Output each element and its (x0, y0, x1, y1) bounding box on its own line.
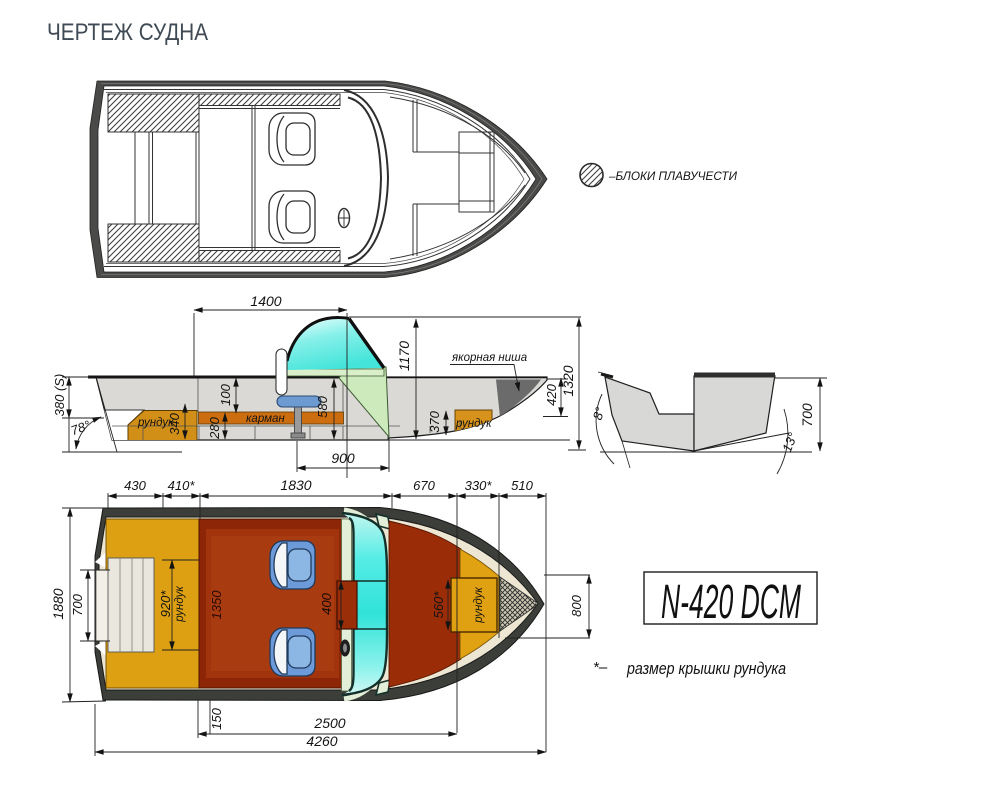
svg-text:370: 370 (427, 410, 442, 432)
svg-text:1350: 1350 (209, 590, 224, 620)
svg-text:410*: 410* (168, 478, 196, 493)
svg-text:карман: карман (246, 413, 285, 425)
svg-text:700: 700 (70, 593, 85, 615)
svg-text:100: 100 (218, 383, 233, 405)
svg-text:900: 900 (331, 450, 355, 466)
svg-text:2500: 2500 (313, 715, 345, 731)
svg-text:размер крышки рундука: размер крышки рундука (626, 660, 786, 678)
svg-text:1830: 1830 (280, 477, 311, 493)
svg-text:ЧЕРТЕЖ СУДНА: ЧЕРТЕЖ СУДНА (47, 19, 208, 46)
svg-text:N-420 DCM: N-420 DCM (661, 576, 801, 629)
svg-text:280: 280 (207, 416, 222, 439)
svg-text:8°: 8° (590, 405, 608, 421)
svg-text:580: 580 (315, 395, 330, 417)
svg-text:рундук: рундук (455, 418, 492, 430)
svg-text:1400: 1400 (250, 293, 281, 309)
svg-text:–БЛОКИ ПЛАВУЧЕСТИ: –БЛОКИ ПЛАВУЧЕСТИ (608, 171, 738, 183)
svg-text:430: 430 (124, 478, 146, 493)
svg-text:420: 420 (544, 383, 559, 405)
svg-text:560*: 560* (431, 591, 446, 619)
svg-text:78°: 78° (69, 417, 93, 438)
svg-text:*–: *– (593, 659, 608, 676)
svg-text:якорная ниша: якорная ниша (451, 352, 527, 364)
svg-text:1170: 1170 (396, 341, 412, 371)
svg-text:1320: 1320 (560, 365, 576, 396)
svg-text:700: 700 (799, 403, 815, 427)
svg-text:рундук: рундук (174, 586, 186, 623)
svg-text:380 (S): 380 (S) (52, 374, 67, 417)
svg-text:510: 510 (511, 478, 533, 493)
svg-text:400: 400 (319, 592, 334, 614)
svg-text:4260: 4260 (306, 733, 337, 749)
svg-text:670: 670 (413, 478, 435, 493)
svg-text:рундук: рундук (473, 587, 485, 624)
svg-text:340: 340 (167, 412, 182, 434)
svg-text:920*: 920* (158, 590, 173, 618)
svg-text:1880: 1880 (50, 588, 66, 619)
svg-text:330*: 330* (465, 478, 493, 493)
svg-text:800: 800 (569, 594, 584, 616)
svg-text:150: 150 (209, 707, 224, 729)
